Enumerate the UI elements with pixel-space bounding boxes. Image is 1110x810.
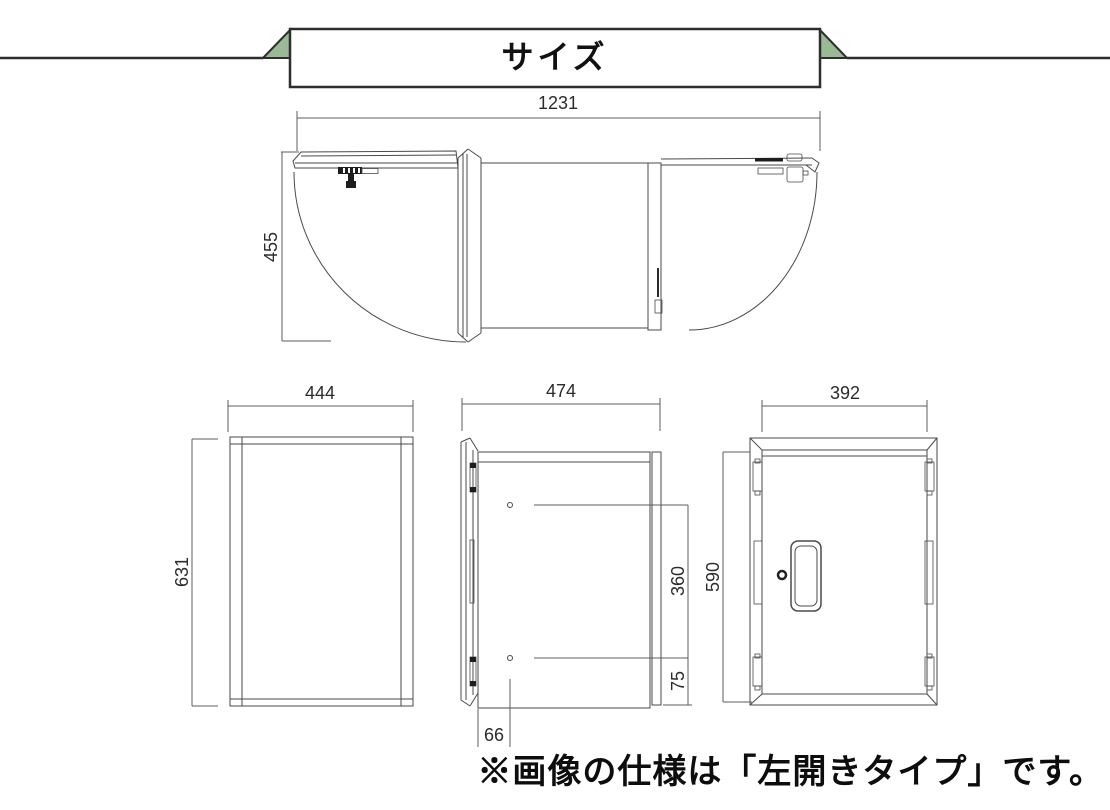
ribbon-fold-left: [263, 30, 290, 58]
top-view: 1231 455: [261, 93, 820, 342]
dim-hole-pitch: 360: [534, 505, 688, 658]
hinge-icon: [753, 657, 762, 686]
left-door-plan: [293, 151, 458, 188]
rear-recess-left: [754, 541, 762, 604]
diagram-canvas: 1231 455: [0, 0, 1110, 810]
dim-label-hole-pitch: 360: [668, 566, 688, 596]
dim-label-side-depth: 474: [546, 381, 576, 401]
dim-hole-bottom: 75: [663, 658, 692, 705]
hinge-icon: [753, 462, 762, 491]
hinge-edge-strip: [458, 149, 481, 342]
door-lock-pin-icon: [348, 174, 354, 182]
dim-top-width: 1231: [297, 93, 820, 151]
mounting-hole-bottom: [508, 656, 513, 661]
dim-top-depth: 455: [261, 152, 331, 341]
dim-label-top-depth: 455: [261, 232, 281, 262]
banner-title: サイズ: [290, 29, 820, 87]
door-latch-plate-icon: [755, 158, 783, 162]
dim-label-front-width: 444: [305, 383, 335, 403]
dim-label-rear-width: 392: [830, 383, 860, 403]
cabinet-body-plan: [481, 163, 662, 330]
left-open-note: ※画像の仕様は「左開きタイプ」です。: [404, 744, 1104, 793]
dim-label-front-height: 631: [172, 557, 192, 587]
door-swing-arc-right: [689, 172, 817, 330]
rear-view: 392 590: [703, 383, 937, 705]
dim-label-rear-height: 590: [703, 562, 723, 592]
side-body-outline: [478, 452, 650, 708]
door-swing-arc-left: [294, 172, 466, 342]
ribbon-fold-right: [820, 30, 847, 58]
front-body-outline: [230, 437, 413, 706]
dim-front-height: 631: [172, 439, 218, 706]
rear-door-outline: [762, 450, 927, 694]
rear-frame-outline: [750, 438, 937, 705]
right-jamb-strip: [648, 163, 661, 330]
mounting-hole-top: [508, 503, 513, 508]
hinge-icon: [925, 462, 934, 491]
product-size-diagram: 1231 455: [0, 0, 1110, 810]
dim-hole-side: 66: [478, 679, 510, 747]
dim-front-width: 444: [228, 383, 413, 432]
dim-label-top-width: 1231: [538, 93, 578, 113]
dim-side-depth: 474: [462, 381, 660, 431]
right-door-plan: [661, 154, 819, 182]
dim-rear-height: 590: [703, 452, 752, 702]
hinge-icon: [925, 657, 934, 686]
dim-rear-width: 392: [762, 383, 927, 432]
door-latch-block-icon: [787, 167, 803, 182]
dim-label-hole-side: 66: [484, 725, 504, 745]
rear-recess-right: [925, 541, 933, 604]
dim-label-hole-bottom: 75: [668, 671, 688, 691]
side-door-edge: [461, 438, 478, 706]
front-view: 444 631: [172, 383, 413, 706]
side-view: 474 360: [461, 381, 692, 747]
keyhole-icon: [778, 571, 786, 579]
side-rear-panel: [652, 452, 661, 705]
